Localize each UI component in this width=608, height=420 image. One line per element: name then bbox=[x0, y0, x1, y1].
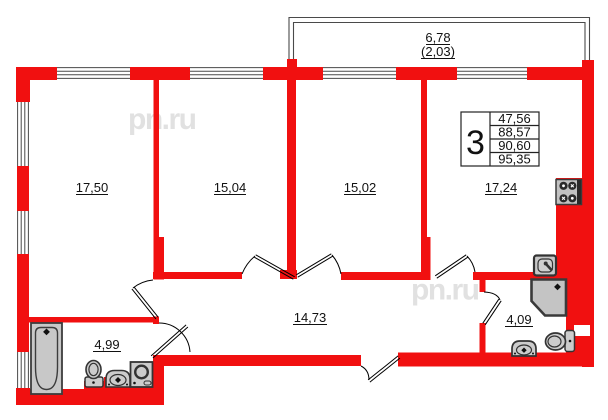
svg-text:6,78: 6,78 bbox=[425, 30, 450, 45]
svg-text:4,09: 4,09 bbox=[506, 312, 531, 327]
svg-text:15,04: 15,04 bbox=[214, 180, 247, 195]
svg-text:4,99: 4,99 bbox=[94, 337, 119, 352]
svg-text:3: 3 bbox=[466, 124, 485, 162]
svg-text:(2,03): (2,03) bbox=[421, 44, 455, 59]
svg-text:17,50: 17,50 bbox=[76, 180, 109, 195]
svg-text:14,73: 14,73 bbox=[294, 310, 327, 325]
svg-text:95,35: 95,35 bbox=[498, 152, 531, 167]
svg-text:17,24: 17,24 bbox=[485, 180, 518, 195]
svg-text:pn.ru: pn.ru bbox=[128, 103, 196, 136]
svg-text:15,02: 15,02 bbox=[344, 180, 377, 195]
